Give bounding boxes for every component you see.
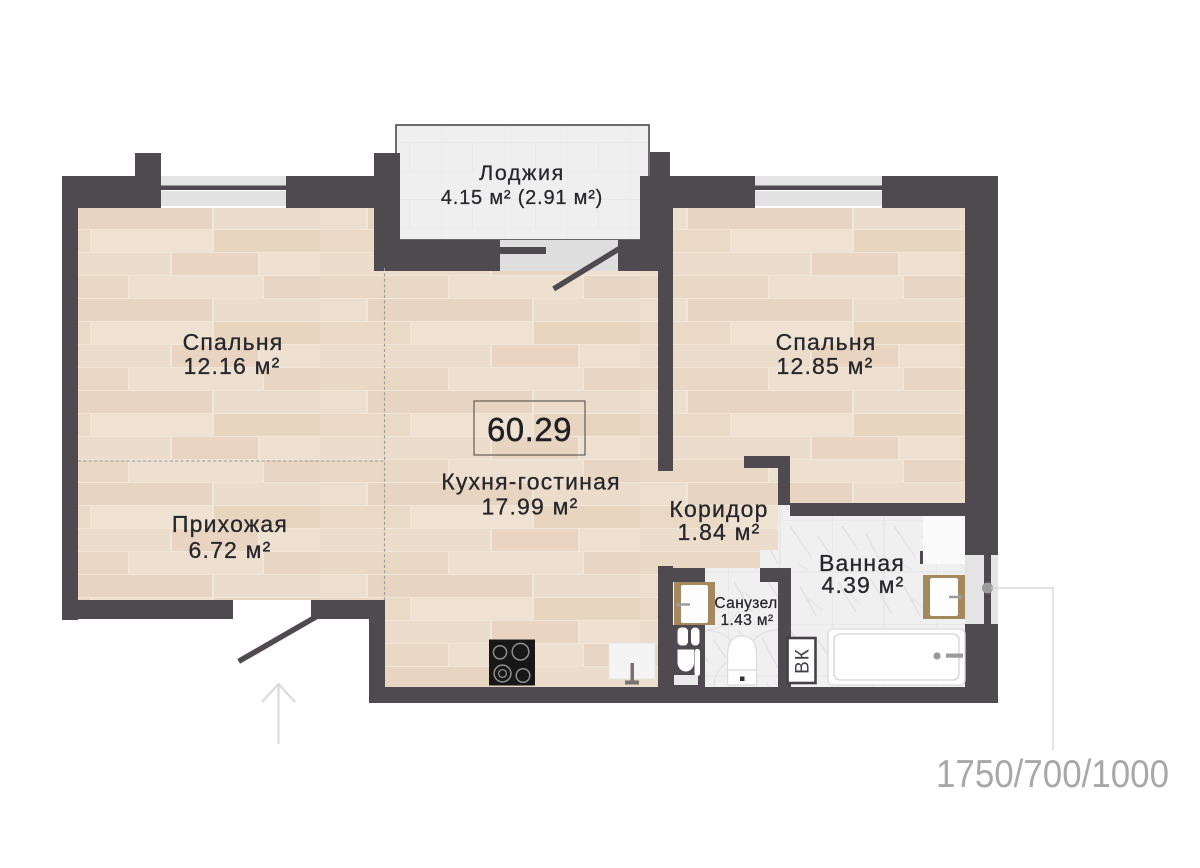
svg-text:1.43 м²: 1.43 м²: [720, 612, 773, 629]
svg-text:12.85 м²: 12.85 м²: [776, 353, 873, 379]
svg-text:4.15 м² (2.91 м²): 4.15 м² (2.91 м²): [441, 187, 603, 209]
svg-text:1750/700/1000: 1750/700/1000: [936, 753, 1169, 796]
svg-text:Лоджия: Лоджия: [479, 161, 565, 185]
svg-text:Спальня: Спальня: [183, 329, 284, 355]
svg-text:Кухня-гостиная: Кухня-гостиная: [441, 469, 621, 495]
svg-text:Санузел: Санузел: [714, 595, 777, 612]
svg-text:Спальня: Спальня: [776, 329, 877, 355]
svg-text:ВК: ВК: [793, 648, 814, 674]
svg-text:60.29: 60.29: [487, 411, 572, 448]
svg-text:6.72 м²: 6.72 м²: [188, 537, 271, 563]
svg-text:4.39 м²: 4.39 м²: [821, 572, 904, 598]
svg-text:17.99 м²: 17.99 м²: [481, 494, 578, 520]
svg-text:12.16 м²: 12.16 м²: [183, 353, 280, 379]
svg-text:Прихожая: Прихожая: [172, 511, 288, 537]
svg-text:1.84 м²: 1.84 м²: [677, 519, 760, 545]
